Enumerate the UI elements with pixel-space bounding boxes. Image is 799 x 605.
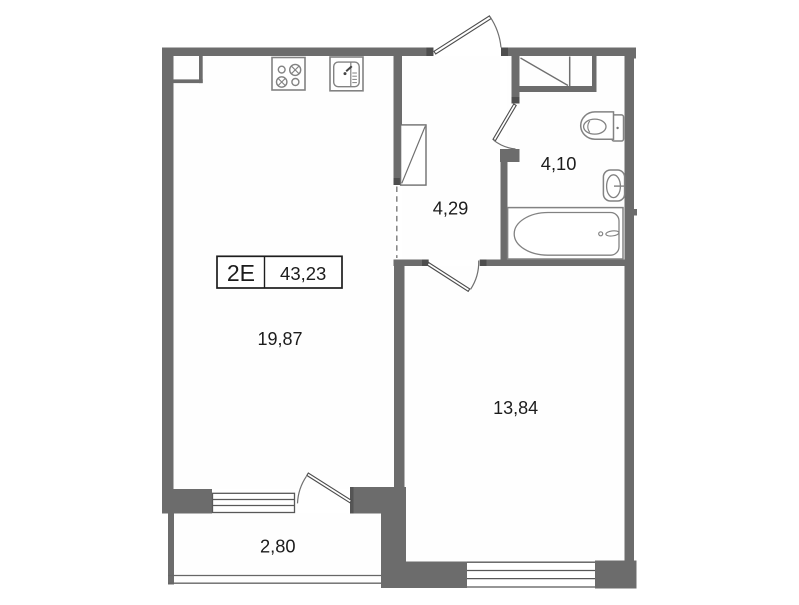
- svg-text:4,10: 4,10: [541, 153, 577, 174]
- svg-text:43,23: 43,23: [280, 263, 326, 284]
- svg-text:13,84: 13,84: [493, 398, 538, 418]
- svg-text:2,80: 2,80: [260, 536, 296, 557]
- svg-text:2E: 2E: [227, 260, 255, 286]
- svg-text:4,29: 4,29: [433, 198, 469, 219]
- svg-text:19,87: 19,87: [257, 329, 302, 349]
